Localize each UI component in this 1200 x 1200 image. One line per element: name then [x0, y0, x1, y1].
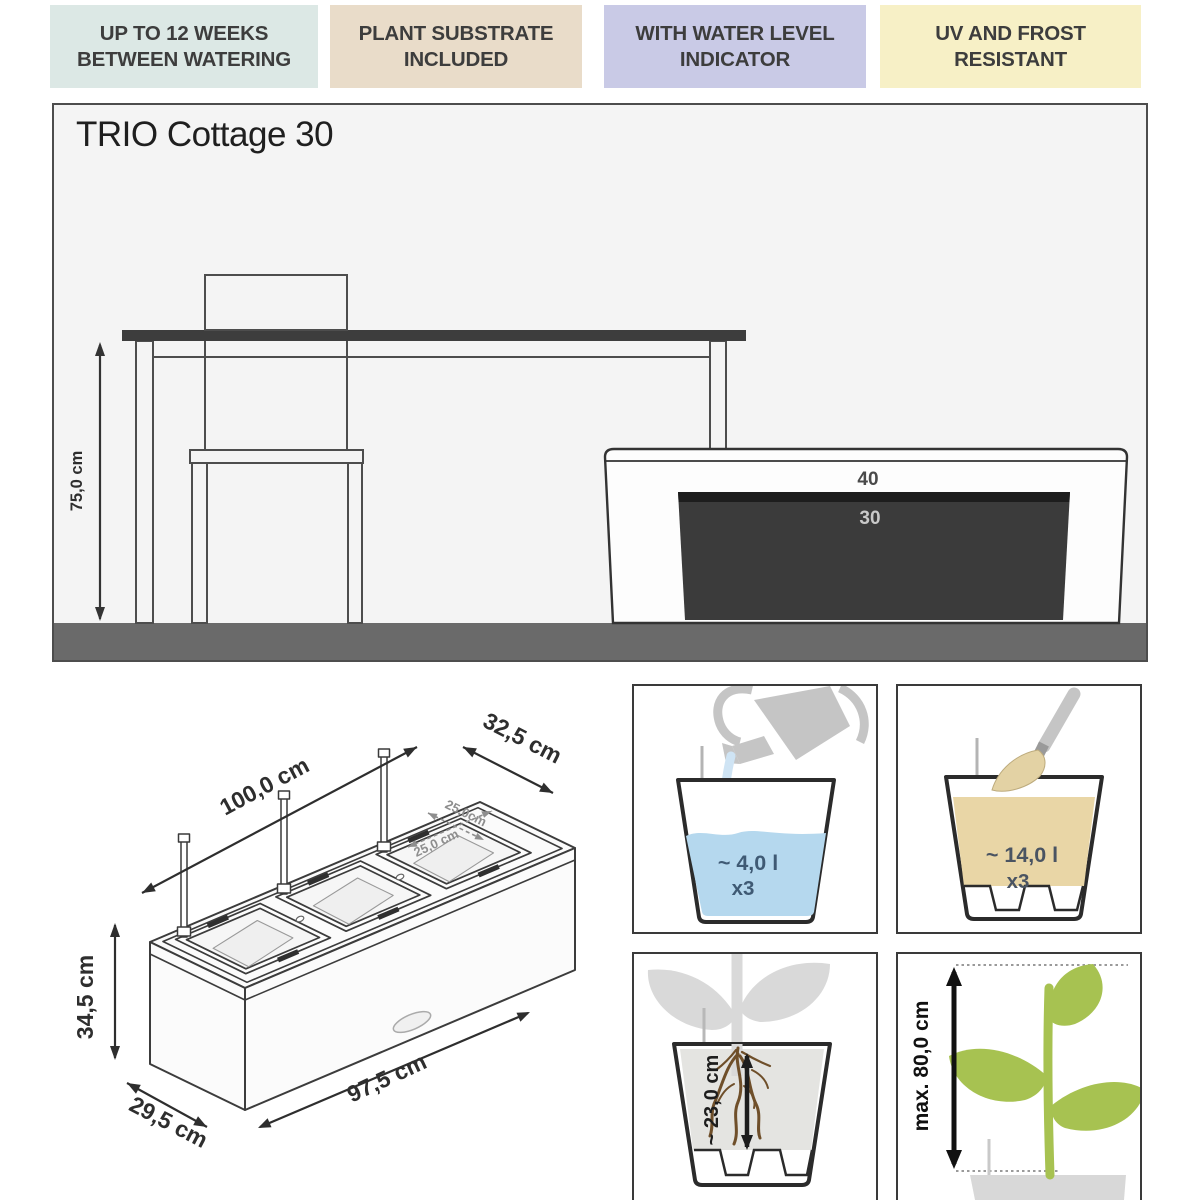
table-top	[122, 330, 746, 341]
outer-planter-label: 40	[857, 469, 878, 490]
panel-substrate-volume: ~ 14,0 l x3	[896, 684, 1142, 934]
table-leg	[136, 341, 153, 623]
water-panel-svg: ~ 4,0 l x3	[634, 686, 876, 932]
banner-substrate-included: PLANT SUBSTRATE INCLUDED	[330, 5, 582, 88]
plant-height-label: max. 80,0 cm	[910, 1001, 933, 1132]
banner-line: INDICATOR	[680, 47, 790, 73]
table-height-label: 75,0 cm	[68, 451, 86, 512]
chair-seat	[190, 450, 363, 463]
isometric-svg: 100,0 cm 32,5 cm 34,5 cm 97,5 cm 29,5 cm…	[60, 695, 630, 1200]
water-multiplier-label: x3	[732, 877, 755, 900]
banner-line: RESISTANT	[954, 47, 1067, 73]
banner-uv-frost: UV AND FROST RESISTANT	[880, 5, 1141, 88]
root-depth-label: ~ 23,0 cm	[701, 1055, 723, 1146]
floor	[54, 623, 1146, 660]
side-view-drawing: 75,0 cm 40 30	[54, 105, 1146, 660]
isometric-planter-drawing	[150, 749, 575, 1110]
page-title: TRIO Cottage 30	[76, 115, 333, 155]
panel-plant-height: max. 80,0 cm	[896, 952, 1142, 1200]
substrate-multiplier-label: x3	[1007, 870, 1030, 893]
panel-water-volume: ~ 4,0 l x3	[632, 684, 878, 934]
substrate-volume-label: ~ 14,0 l	[986, 843, 1058, 867]
chair-leg	[192, 463, 207, 623]
chair-backrest	[205, 275, 347, 330]
watering-can-icon	[718, 686, 865, 764]
banner-watering-interval: UP TO 12 WEEKS BETWEEN WATERING	[50, 5, 318, 88]
banner-water-indicator: WITH WATER LEVEL INDICATOR	[604, 5, 866, 88]
inner-planter-label: 30	[859, 508, 880, 529]
height-label: 34,5 cm	[72, 955, 98, 1039]
isometric-dimension-drawing: 100,0 cm 32,5 cm 34,5 cm 97,5 cm 29,5 cm…	[60, 695, 630, 1200]
chair-drawing	[190, 275, 363, 623]
product-infographic: UP TO 12 WEEKS BETWEEN WATERING PLANT SU…	[0, 0, 1200, 1200]
root-panel-svg: ~ 23,0 cm	[634, 954, 876, 1200]
chair-leg	[348, 463, 362, 623]
panel-root-depth: ~ 23,0 cm	[632, 952, 878, 1200]
width-top-label: 32,5 cm	[479, 707, 566, 768]
banner-line: PLANT SUBSTRATE	[359, 21, 554, 47]
dimension-diagram-panel: 75,0 cm 40 30 TRIO Cottage 30	[52, 103, 1148, 662]
banner-line: INCLUDED	[404, 47, 508, 73]
inner-planter-rim	[678, 492, 1070, 502]
plant-panel-svg: max. 80,0 cm	[898, 954, 1140, 1200]
planter-side-view: 40 30	[605, 449, 1127, 623]
banner-line: BETWEEN WATERING	[77, 47, 291, 73]
banner-line: UV AND FROST	[935, 21, 1086, 47]
banner-line: UP TO 12 WEEKS	[100, 21, 268, 47]
substrate-panel-svg: ~ 14,0 l x3	[898, 686, 1140, 932]
height-dimension-arrow: 75,0 cm	[68, 342, 105, 621]
table-leg	[710, 341, 726, 452]
banner-line: WITH WATER LEVEL	[635, 21, 834, 47]
water-volume-label: ~ 4,0 l	[718, 851, 778, 875]
